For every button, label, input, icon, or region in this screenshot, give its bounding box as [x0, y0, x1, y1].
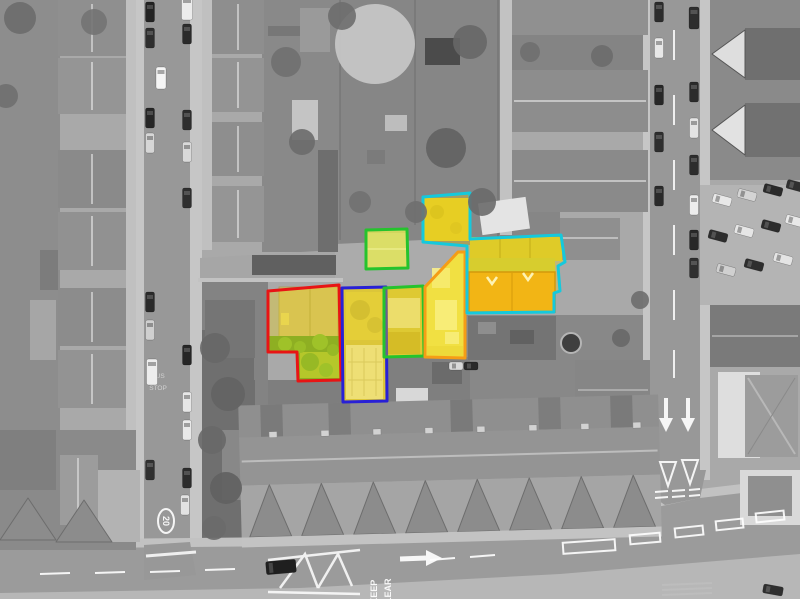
car — [655, 186, 664, 206]
car — [182, 0, 193, 20]
car — [655, 38, 664, 58]
car — [183, 468, 192, 488]
car — [183, 345, 192, 365]
tree — [210, 472, 242, 504]
tree — [4, 2, 36, 34]
car — [183, 392, 192, 412]
tree — [81, 9, 107, 35]
tree — [426, 128, 466, 168]
car — [146, 320, 155, 340]
car — [689, 7, 699, 29]
car — [146, 292, 155, 312]
keep-clear-marking-clear: CLEAR — [383, 578, 393, 599]
car — [655, 2, 664, 22]
tree — [271, 47, 301, 77]
tree — [520, 42, 540, 62]
car — [147, 359, 158, 385]
street-left — [144, 0, 190, 575]
tree — [198, 426, 226, 454]
car — [449, 362, 463, 370]
car — [146, 28, 155, 48]
car — [690, 82, 699, 102]
car — [146, 460, 155, 480]
car — [183, 24, 192, 44]
terrace-row-bottom — [238, 395, 662, 548]
aerial-scene: KEEP CLEAR — [0, 0, 800, 599]
car — [181, 495, 190, 515]
tree — [405, 201, 427, 223]
speed-limit-marking: 20 — [161, 516, 171, 526]
car — [690, 258, 699, 278]
tree — [591, 45, 613, 67]
tree — [211, 377, 245, 411]
tree — [631, 291, 649, 309]
tree — [289, 129, 315, 155]
tree — [468, 188, 496, 216]
tree — [612, 329, 630, 347]
keep-clear-marking-keep: KEEP — [369, 580, 379, 599]
car — [156, 67, 166, 89]
car — [183, 142, 192, 162]
tree — [202, 516, 226, 540]
bus-stop-marking-stop: STOP — [149, 385, 167, 392]
tree — [328, 2, 356, 30]
parcel-green-small[interactable] — [366, 229, 408, 269]
parcel-blue[interactable] — [342, 287, 387, 402]
car — [146, 133, 155, 153]
corner-block-left — [0, 430, 140, 550]
car — [690, 230, 699, 250]
car — [655, 85, 664, 105]
tree — [349, 191, 371, 213]
tree — [200, 333, 230, 363]
parcel-green-tall[interactable] — [384, 286, 424, 357]
car — [146, 108, 155, 128]
car — [183, 110, 192, 130]
car — [464, 362, 478, 370]
car — [265, 559, 296, 575]
trampoline — [561, 333, 581, 353]
tree — [453, 25, 487, 59]
car — [655, 132, 664, 152]
car — [690, 155, 699, 175]
car — [690, 118, 699, 138]
car — [690, 195, 699, 215]
aerial-photo: KEEP CLEAR — [0, 0, 800, 599]
car — [183, 420, 192, 440]
car — [146, 2, 155, 22]
car — [183, 188, 192, 208]
